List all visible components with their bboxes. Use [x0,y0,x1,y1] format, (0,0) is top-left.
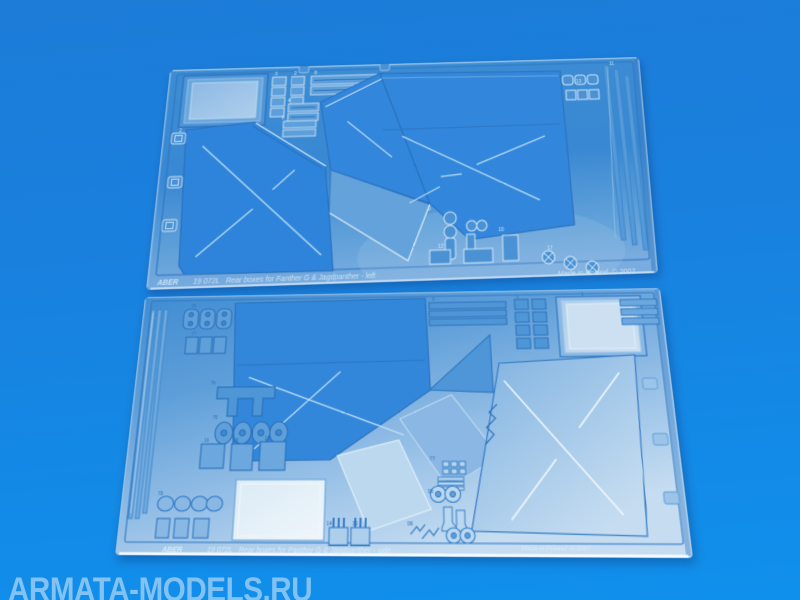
svg-text:12: 12 [438,243,444,249]
svg-text:11: 11 [609,61,615,66]
svg-text:13: 13 [576,79,582,84]
svg-text:9: 9 [428,206,431,212]
svg-text:10: 10 [498,227,504,233]
svg-text:19 072L Rear boxes for Panth: 19 072L Rear boxes for Panther G & Jagdp… [206,547,391,556]
svg-text:96: 96 [407,520,414,527]
svg-text:14: 14 [326,520,333,527]
svg-text:77: 77 [429,456,436,462]
svg-text:ABER: ABER [156,279,179,288]
svg-text:Made in Poland © 2007: Made in Poland © 2007 [521,544,592,554]
svg-text:15: 15 [352,520,359,527]
svg-text:9b: 9b [428,488,435,494]
svg-text:17: 17 [547,245,553,251]
svg-text:ABER: ABER [160,547,183,555]
